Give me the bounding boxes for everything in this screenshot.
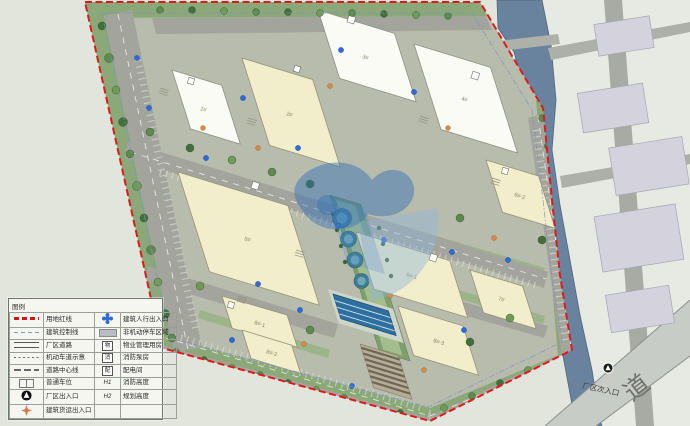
parking-stall-swatch [19, 379, 34, 388]
tree-icon [285, 9, 292, 16]
legend-label: 物业管理用房 [121, 340, 177, 353]
tree-icon [133, 182, 142, 191]
pedestrian-entrance-icon [297, 307, 302, 312]
legend-row: 机动车道示意 消 消防泵房 [10, 352, 177, 365]
legend-row: 道路中心线 配 配电间 [10, 365, 177, 378]
tree-icon [126, 150, 134, 158]
pedestrian-entrance-icon [229, 337, 234, 342]
legend-label: 用地红线 [44, 313, 95, 328]
freight-entrance-icon [201, 126, 206, 131]
legend-label: 消防高度 [121, 377, 177, 390]
pedestrian-entrance-icon [203, 155, 208, 160]
legend-title: 图例 [9, 299, 162, 312]
tree-icon [253, 9, 260, 16]
legend-label: 规划高度 [121, 390, 177, 405]
power-room-symbol: 配 [102, 366, 113, 376]
legend-label: 建筑人行出入口 [121, 313, 177, 328]
bike-parking-swatch [99, 329, 117, 337]
pedestrian-entrance-icon [411, 89, 416, 94]
site-plan-screenshot: 1# 2# 3# 4# 5# 6#-1 6#-2 7# 8#-1 8#-2 8#… [0, 0, 690, 426]
legend-row: 厂区出入口 H2 规划高度 [10, 390, 177, 405]
pedestrian-entrance-icon [146, 105, 151, 110]
red-boundary-swatch [14, 317, 39, 320]
pedestrian-entrance-icon [102, 313, 113, 324]
fire-height-symbol: H1 [104, 380, 112, 386]
freight-entrance-icon [256, 146, 261, 151]
pedestrian-entrance-icon [461, 327, 466, 332]
tree-icon [189, 7, 196, 14]
legend-row: 建筑控制线 非机动停车区域 [10, 327, 177, 340]
secondary-entrance-icon [603, 363, 613, 373]
freight-entrance-icon [302, 342, 307, 347]
pedestrian-entrance-icon [505, 257, 510, 262]
freight-entrance-icon [21, 405, 32, 416]
tree-icon [441, 405, 448, 412]
fire-pump-symbol: 消 [102, 353, 113, 363]
legend-label: 配电间 [121, 365, 177, 378]
pedestrian-entrance-icon [240, 95, 245, 100]
centerline-swatch [14, 369, 39, 371]
tree-icon [186, 144, 194, 152]
tree-icon [140, 214, 148, 222]
tree-icon [157, 7, 164, 14]
tree-icon [381, 11, 388, 18]
legend-row: 厂区道路 物 物业管理用房 [10, 340, 177, 353]
tree-icon [268, 168, 276, 176]
legend: 图例 用地红线 建筑人行出入口 建筑控制线 非机动停车区域 厂区道路 物 [8, 298, 163, 420]
lane-swatch [14, 357, 39, 359]
legend-label: 非机动停车区域 [121, 327, 177, 340]
tree-icon [506, 314, 514, 322]
road-swatch [14, 342, 39, 348]
pedestrian-entrance-icon [449, 249, 454, 254]
freight-entrance-icon [492, 236, 497, 241]
legend-row: 用地红线 建筑人行出入口 [10, 313, 177, 328]
pedestrian-entrance-icon [295, 145, 300, 150]
tree-icon [154, 278, 162, 286]
tree-icon [221, 8, 228, 15]
legend-label: 道路中心线 [44, 365, 95, 378]
legend-label: 建筑控制线 [44, 327, 95, 340]
legend-row: 建筑货运出入口 [10, 404, 177, 419]
freight-entrance-icon [446, 126, 451, 131]
legend-label: 厂区道路 [44, 340, 95, 353]
legend-row: 普通车位 H1 消防高度 [10, 377, 177, 390]
tree-icon [119, 118, 128, 127]
pedestrian-entrance-icon [134, 55, 139, 60]
tree-icon [456, 214, 464, 222]
tree-icon [413, 12, 420, 19]
legend-label: 建筑货运出入口 [44, 404, 95, 419]
pedestrian-entrance-icon [338, 47, 343, 52]
pedestrian-entrance-icon [255, 281, 260, 286]
tree-icon [196, 282, 204, 290]
tree-icon [469, 393, 476, 400]
freight-entrance-icon [422, 368, 427, 373]
legend-label: 普通车位 [44, 377, 95, 390]
legend-label: 厂区出入口 [44, 390, 95, 405]
freight-entrance-icon [328, 84, 333, 89]
tree-icon [146, 128, 154, 136]
legend-label: 消防泵房 [121, 352, 177, 365]
tree-icon [538, 236, 546, 244]
tree-icon [466, 338, 474, 346]
property-room-symbol: 物 [102, 341, 113, 351]
site-entrance-icon [21, 390, 32, 401]
legend-table: 用地红线 建筑人行出入口 建筑控制线 非机动停车区域 厂区道路 物 物业管理用房 [9, 312, 177, 419]
plan-height-symbol: H2 [104, 394, 112, 400]
tree-icon [306, 326, 314, 334]
legend-label: 机动车道示意 [44, 352, 95, 365]
tree-icon [228, 156, 236, 164]
tree-icon [445, 13, 452, 20]
control-line-swatch [14, 332, 39, 334]
